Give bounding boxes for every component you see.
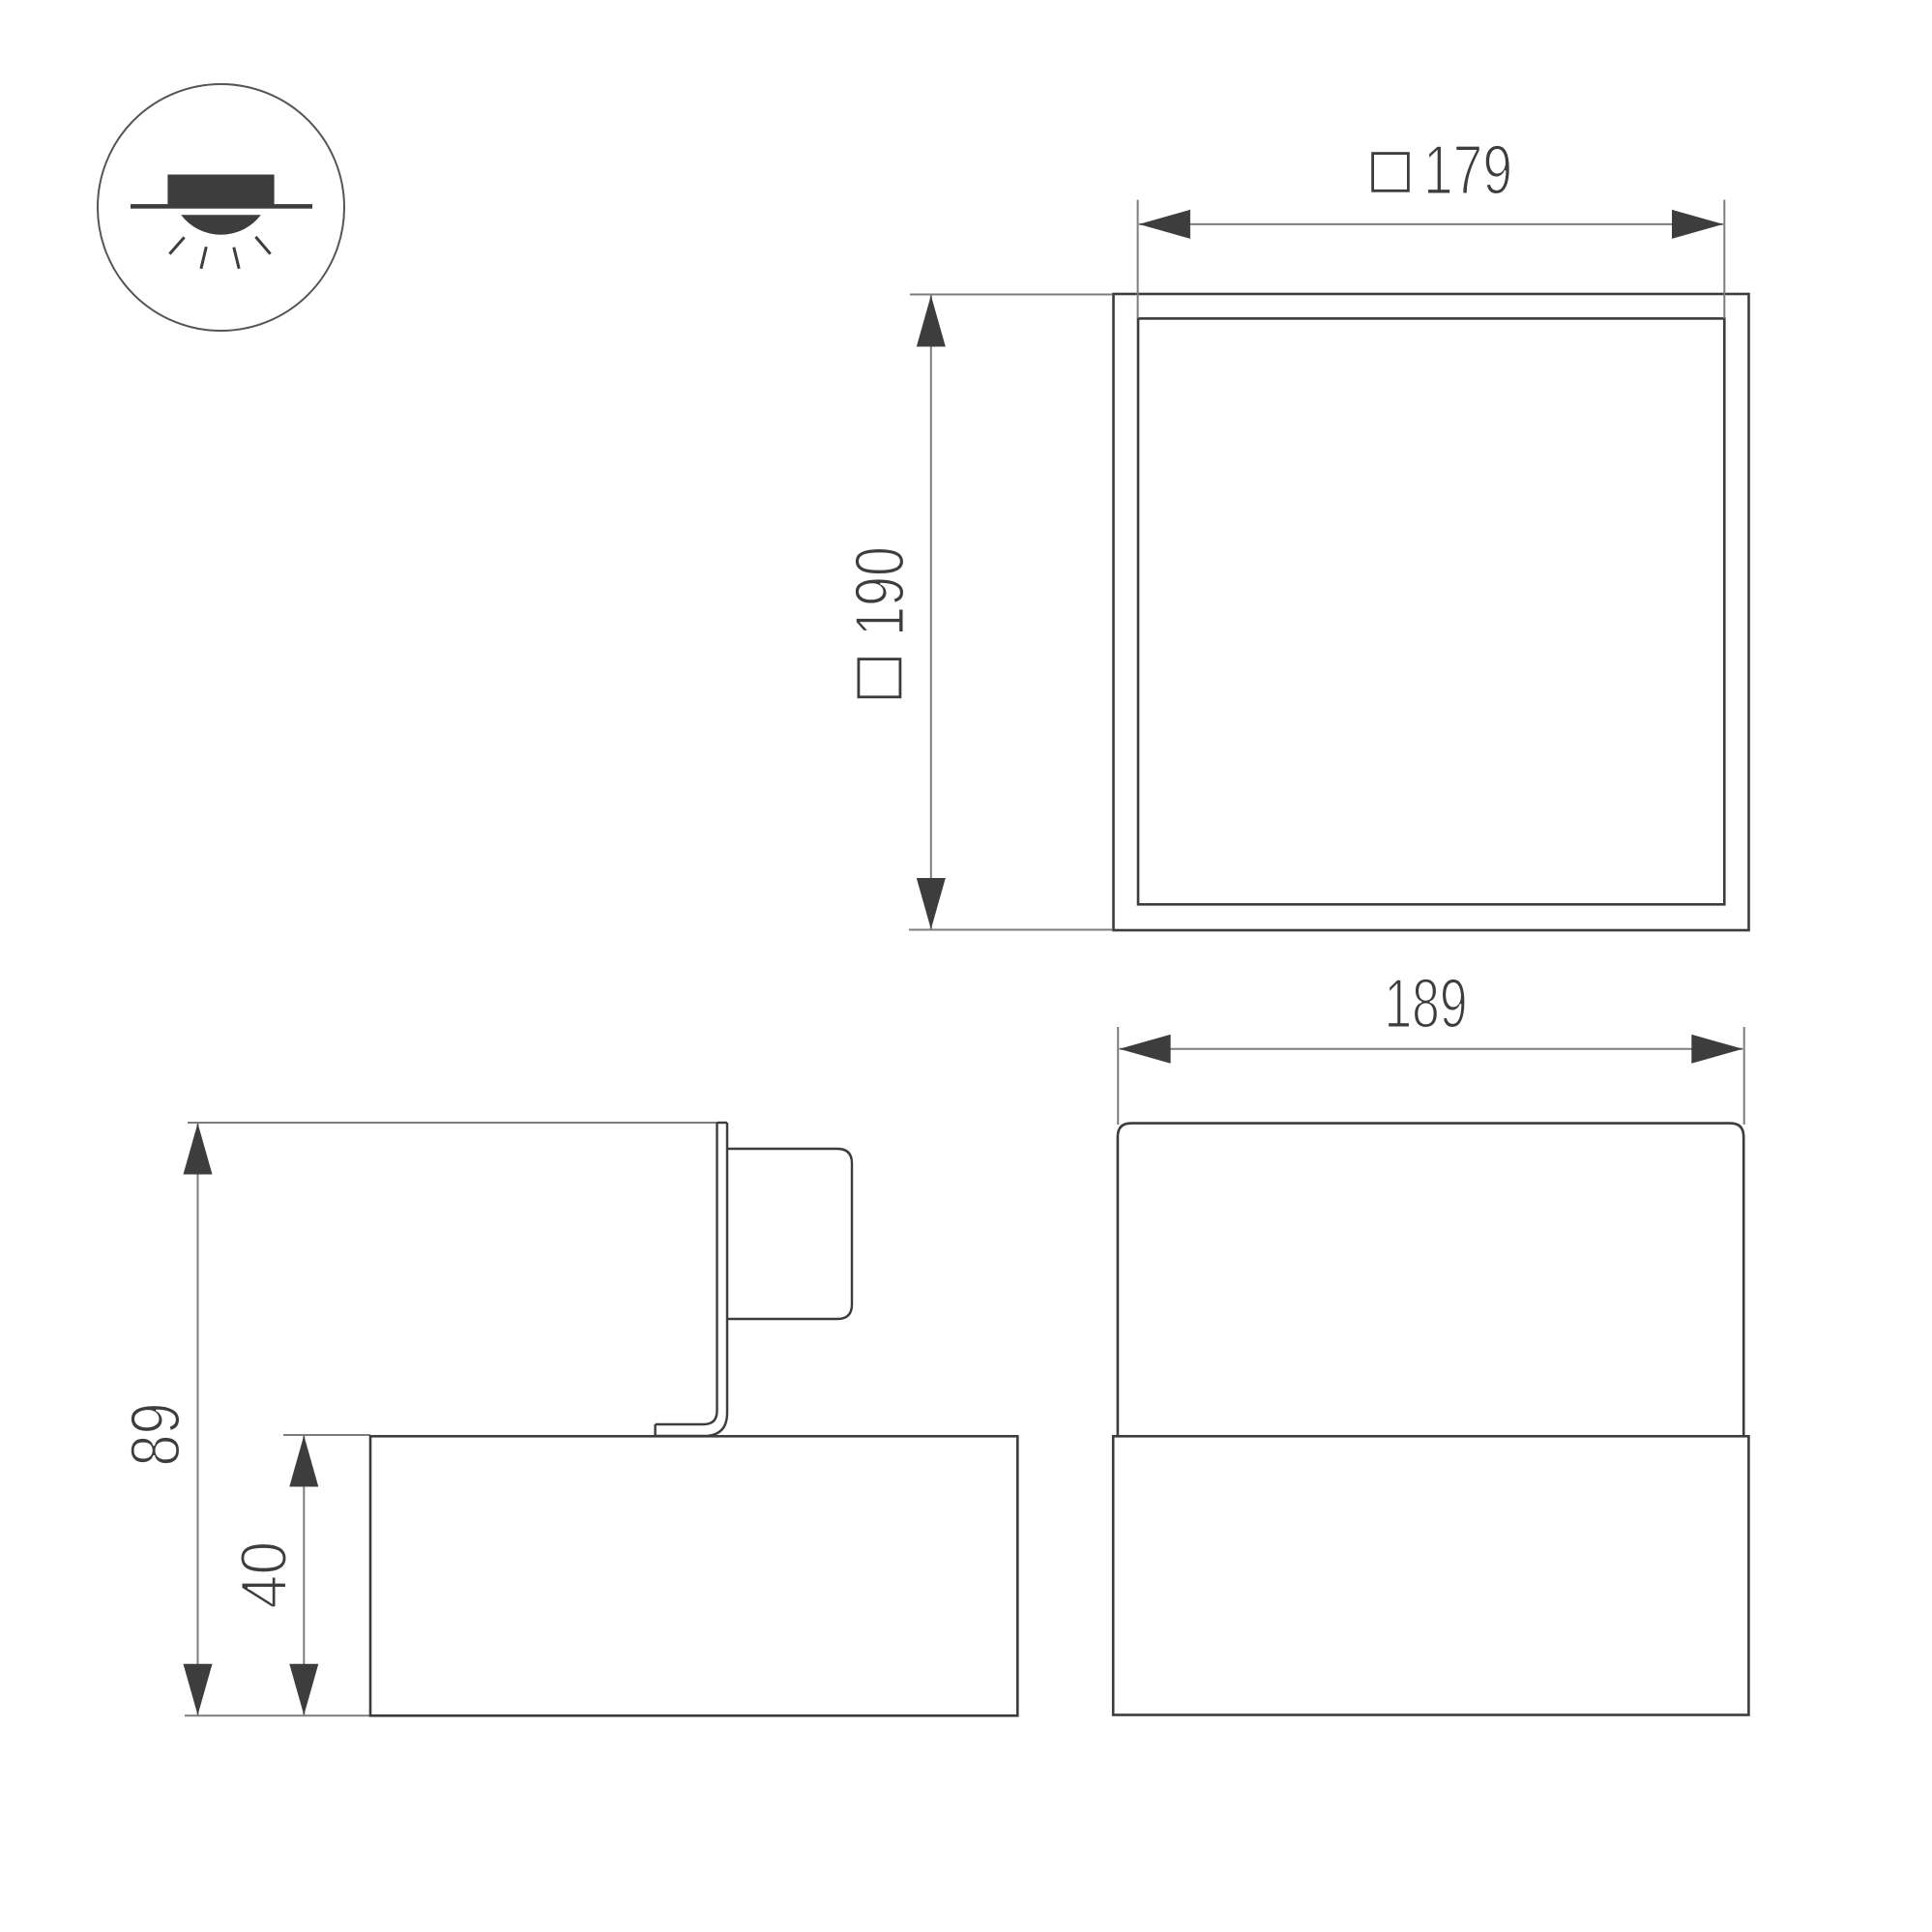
svg-text:190: 190 bbox=[842, 546, 920, 636]
svg-text:179: 179 bbox=[1423, 132, 1512, 210]
svg-text:89: 89 bbox=[117, 1403, 194, 1467]
svg-text:189: 189 bbox=[1385, 965, 1468, 1042]
svg-text:40: 40 bbox=[227, 1541, 301, 1609]
